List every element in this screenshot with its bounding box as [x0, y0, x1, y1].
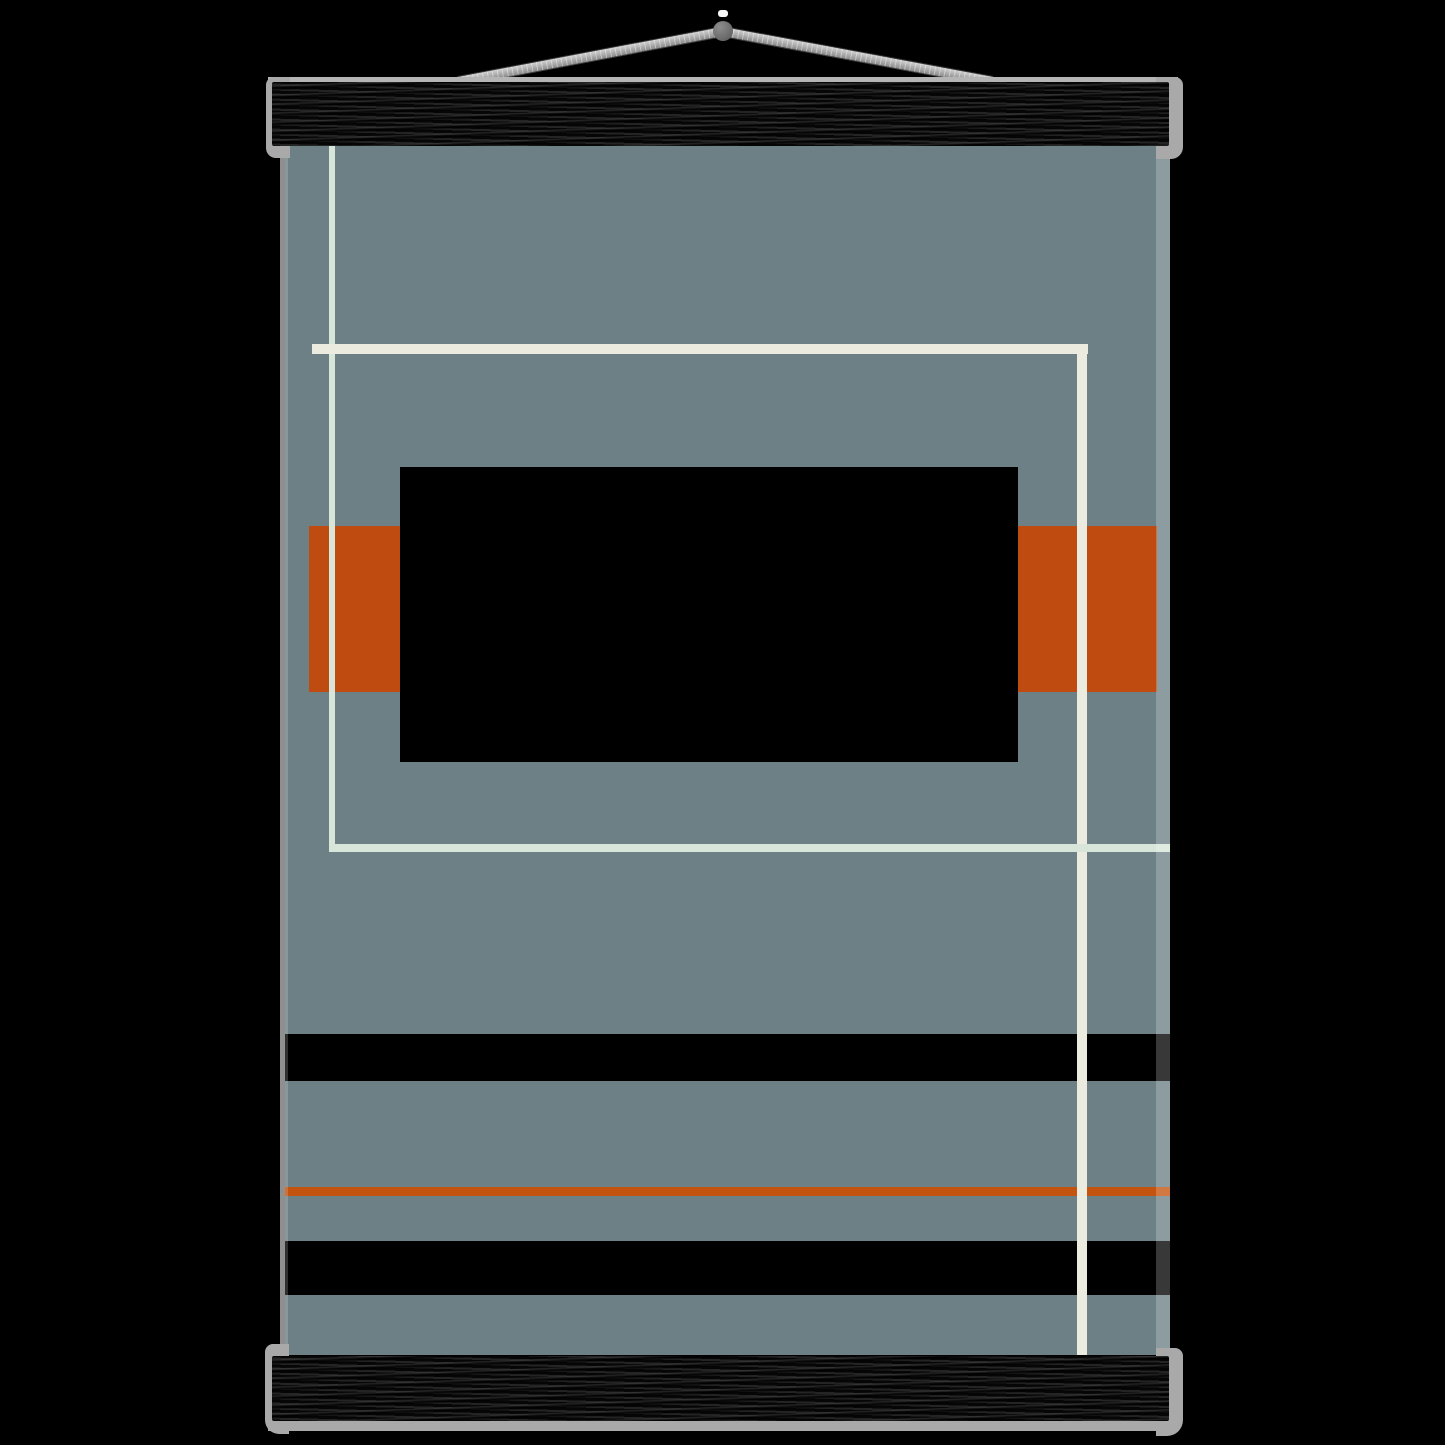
cream-horizontal-line — [312, 344, 1088, 354]
wall-pin-highlight — [718, 10, 728, 17]
black-stripe-1 — [285, 1034, 1170, 1081]
wall-pin-knob — [713, 21, 733, 41]
mint-vertical-line — [329, 145, 335, 849]
mockup-scene — [0, 0, 1445, 1445]
mint-horizontal-line — [329, 844, 1170, 852]
bottom-wooden-bar — [272, 1356, 1169, 1421]
orange-rule-line — [285, 1187, 1170, 1196]
black-rectangle — [400, 467, 1018, 762]
poster-artwork — [285, 145, 1170, 1355]
paper-left-edge-highlight — [285, 145, 288, 1355]
paper-right-edge-shadow — [1156, 145, 1170, 1355]
top-wooden-bar — [272, 82, 1169, 146]
black-stripe-2 — [285, 1241, 1170, 1295]
